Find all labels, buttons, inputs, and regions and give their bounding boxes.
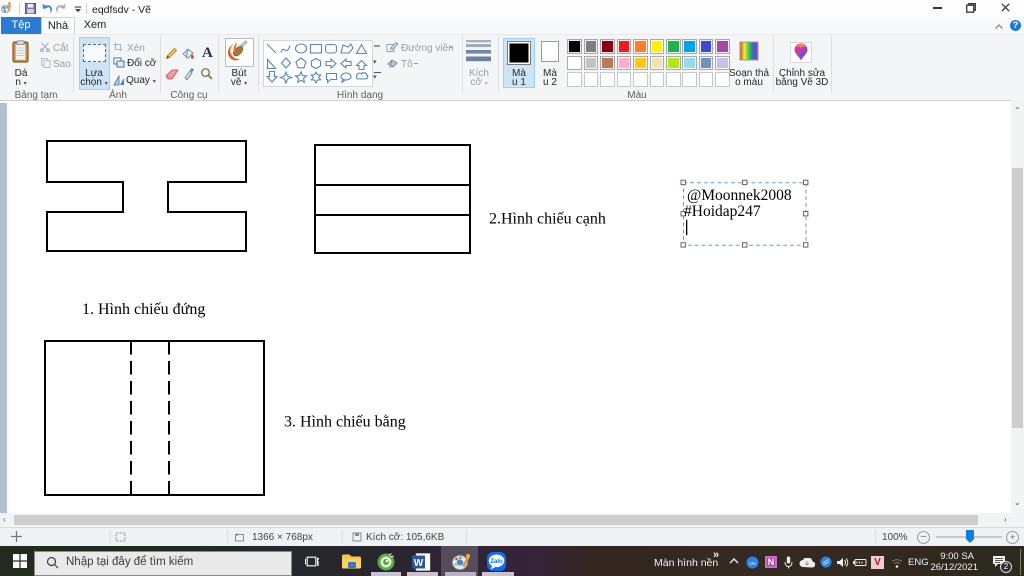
svg-text:W: W — [414, 558, 424, 569]
svg-text:1. Hình chiếu đứng: 1. Hình chiếu đứng — [82, 301, 205, 318]
svg-text:@Moonnek2008: @Moonnek2008 — [687, 187, 792, 204]
svg-text:#Hoidap247: #Hoidap247 — [684, 203, 761, 220]
svg-text:3. Hình chiếu bằng: 3. Hình chiếu bằng — [284, 414, 406, 431]
svg-text:2.Hình chiếu cạnh: 2.Hình chiếu cạnh — [489, 211, 606, 228]
svg-text:zalo: zalo — [749, 561, 757, 566]
svg-text:Zalo: Zalo — [490, 559, 503, 565]
